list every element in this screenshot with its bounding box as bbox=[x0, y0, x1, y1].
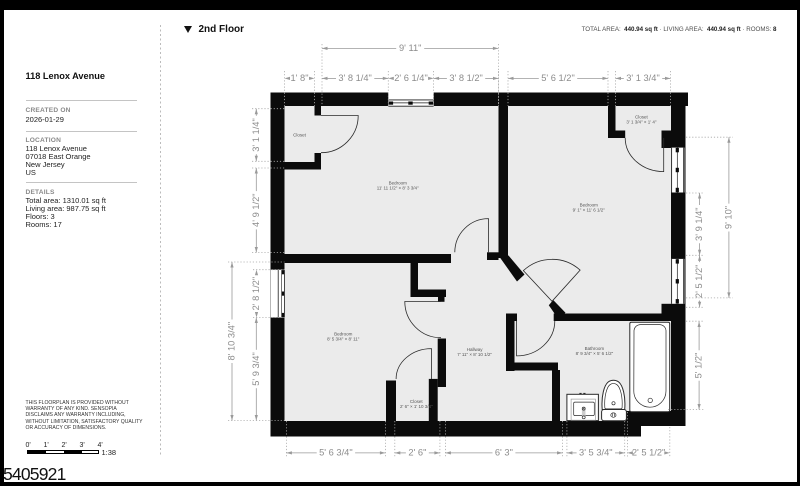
svg-text:3' 5 3/4": 3' 5 3/4" bbox=[579, 448, 613, 458]
svg-text:2' 6 1/4": 2' 6 1/4" bbox=[394, 73, 428, 83]
svg-text:7' 11" × 8' 10 1/2": 7' 11" × 8' 10 1/2" bbox=[457, 352, 492, 357]
svg-text:1' 8": 1' 8" bbox=[291, 73, 309, 83]
svg-text:2' 5 1/2": 2' 5 1/2" bbox=[694, 265, 704, 299]
svg-text:8' 5 3/4" × 8' 11": 8' 5 3/4" × 8' 11" bbox=[327, 337, 360, 342]
svg-text:3' 8 1/4": 3' 8 1/4" bbox=[338, 73, 372, 83]
svg-text:3' 1 3/4": 3' 1 3/4" bbox=[626, 73, 660, 83]
svg-text:3' 1 3/4" × 1' 4": 3' 1 3/4" × 1' 4" bbox=[626, 120, 656, 125]
svg-text:8' 9 3/4" × 5' 6 1/2": 8' 9 3/4" × 5' 6 1/2" bbox=[576, 351, 614, 356]
svg-text:3' 9 1/4": 3' 9 1/4" bbox=[694, 207, 704, 241]
svg-text:9' 10": 9' 10" bbox=[724, 206, 734, 229]
svg-text:4' 9 1/2": 4' 9 1/2" bbox=[251, 193, 261, 227]
svg-text:2' 8 1/2": 2' 8 1/2" bbox=[251, 277, 261, 311]
svg-text:2' 6" × 1' 10 3/4": 2' 6" × 1' 10 3/4" bbox=[400, 404, 433, 409]
svg-text:3' 1 1/4": 3' 1 1/4" bbox=[251, 118, 261, 152]
svg-text:5' 6 1/2": 5' 6 1/2" bbox=[541, 73, 575, 83]
svg-text:9' 1" × 11' 6 1/2": 9' 1" × 11' 6 1/2" bbox=[573, 208, 606, 213]
svg-text:Closet: Closet bbox=[293, 132, 307, 137]
svg-text:3' 8 1/2": 3' 8 1/2" bbox=[449, 73, 483, 83]
svg-text:5' 6 3/4": 5' 6 3/4" bbox=[319, 448, 353, 458]
svg-text:2' 5 1/2": 2' 5 1/2" bbox=[632, 448, 666, 458]
svg-text:11' 11 1/2" × 8' 3 3/4": 11' 11 1/2" × 8' 3 3/4" bbox=[377, 186, 419, 191]
svg-text:2' 6": 2' 6" bbox=[408, 448, 426, 458]
svg-text:5' 9 3/4": 5' 9 3/4" bbox=[251, 352, 261, 386]
svg-text:6' 3": 6' 3" bbox=[495, 448, 513, 458]
svg-text:5' 1/2": 5' 1/2" bbox=[694, 353, 704, 379]
svg-text:8' 10 3/4": 8' 10 3/4" bbox=[227, 322, 237, 361]
svg-text:9' 11": 9' 11" bbox=[399, 43, 421, 53]
